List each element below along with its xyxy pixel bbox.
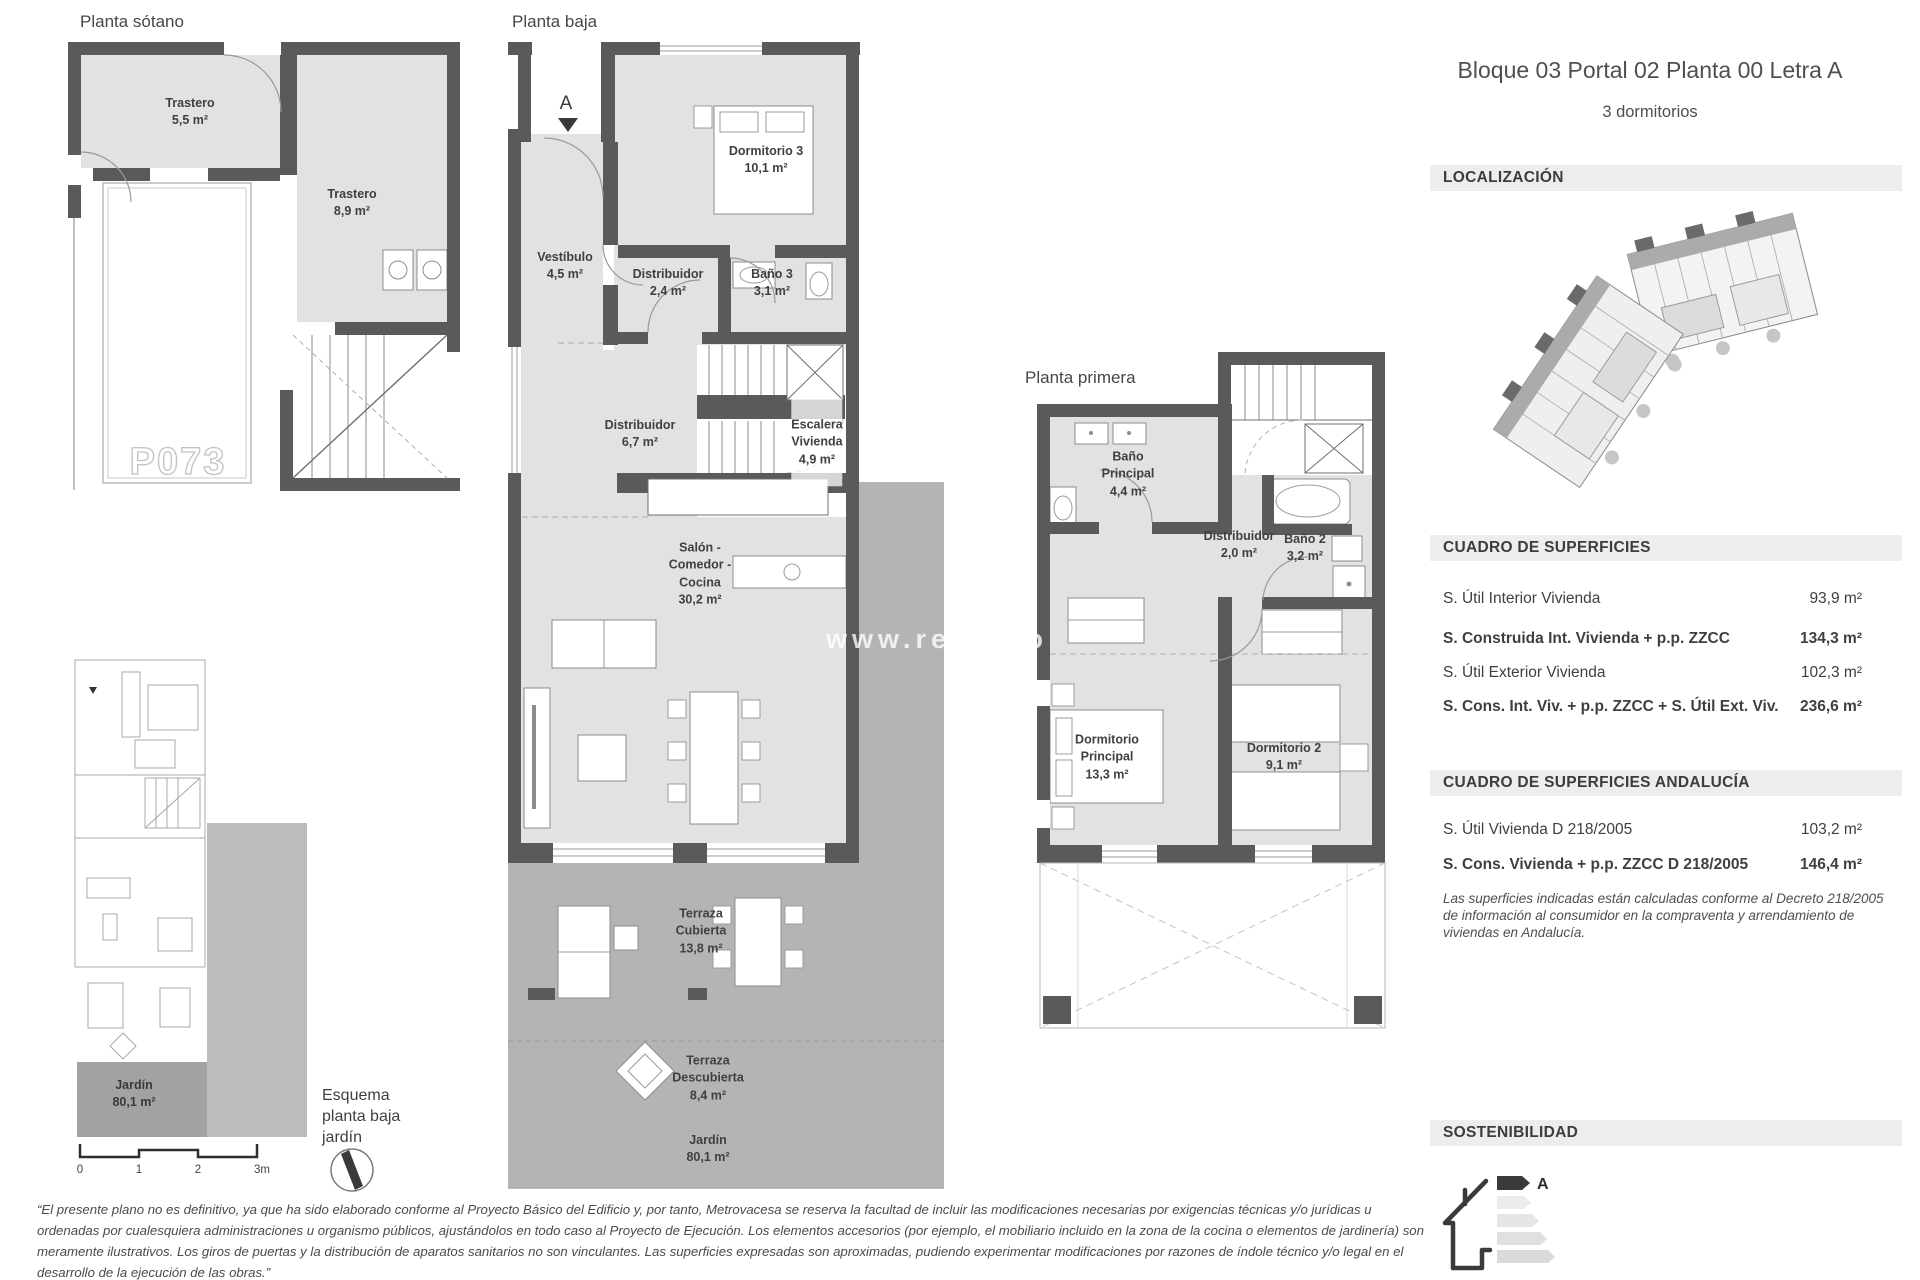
room-area: 8,9 m² xyxy=(327,203,376,221)
room-name: Escalera Vivienda xyxy=(791,417,842,449)
room-name: Distribuidor xyxy=(633,267,704,281)
room-label-dormitorio-principal: Dormitorio Principal 13,3 m² xyxy=(1075,713,1139,801)
plan-primera-floorplan xyxy=(1037,352,1385,1028)
surface-value: 102,3 m² xyxy=(1801,664,1862,682)
room-label-distribuidor-24: Distribuidor 2,4 m² xyxy=(633,248,704,318)
room-label-terraza-cubierta: Terraza Cubierta 13,8 m² xyxy=(676,887,727,975)
surface-value: 134,3 m² xyxy=(1800,630,1862,648)
kitchen-counter-icon xyxy=(733,556,846,588)
surface-row: S. Cons. Int. Viv. + p.p. ZZCC + S. Útil… xyxy=(1443,698,1862,716)
page-title: Bloque 03 Portal 02 Planta 00 Letra A xyxy=(1400,57,1900,84)
room-area: 30,2 m² xyxy=(669,592,732,610)
room-name: Baño 3 xyxy=(751,267,793,281)
room-area: 5,5 m² xyxy=(165,112,214,130)
surface-label: S. Construida Int. Vivienda + p.p. ZZCC xyxy=(1443,630,1730,648)
room-name: Terraza Descubierta xyxy=(672,1053,744,1085)
room-label-terraza-descubierta: Terraza Descubierta 8,4 m² xyxy=(672,1034,744,1122)
room-name: Dormitorio 3 xyxy=(729,144,803,158)
room-name: Trastero xyxy=(327,187,376,201)
section-header-superficies-andalucia: CUADRO DE SUPERFICIES ANDALUCÍA xyxy=(1430,770,1902,796)
surfaces-note: Las superficies indicadas están calculad… xyxy=(1443,890,1895,941)
site-plan-image xyxy=(1483,202,1821,497)
room-area: 2,4 m² xyxy=(633,283,704,301)
room-area: 3,2 m² xyxy=(1284,548,1326,566)
surface-value: 103,2 m² xyxy=(1801,821,1862,839)
surface-row-andalucia: S. Útil Vivienda D 218/2005 103,2 m² xyxy=(1443,821,1862,839)
room-area: 2,0 m² xyxy=(1204,545,1275,563)
surface-label: S. Cons. Vivienda + p.p. ZZCC D 218/2005 xyxy=(1443,856,1748,874)
room-area: 80,1 m² xyxy=(686,1149,729,1167)
room-name: Trastero xyxy=(165,96,214,110)
room-name: Jardín xyxy=(689,1133,727,1147)
room-label-dormitorio2: Dormitorio 2 9,1 m² xyxy=(1247,722,1321,792)
room-area: 4,9 m² xyxy=(791,451,842,469)
surface-row-andalucia: S. Cons. Vivienda + p.p. ZZCC D 218/2005… xyxy=(1443,856,1862,874)
room-label-distribuidor-67: Distribuidor 6,7 m² xyxy=(605,399,676,469)
scale-tick-0: 0 xyxy=(77,1164,83,1176)
pergola-area xyxy=(1040,863,1385,1028)
surface-row: S. Construida Int. Vivienda + p.p. ZZCC … xyxy=(1443,630,1862,648)
room-area: 13,8 m² xyxy=(676,940,727,958)
esquema-garden-label: Jardín 80,1 m² xyxy=(112,1059,155,1129)
surface-value: 93,9 m² xyxy=(1809,590,1862,608)
room-area: 6,7 m² xyxy=(605,434,676,452)
room-label-bano2: Baño 2 3,2 m² xyxy=(1284,513,1326,583)
room-label-salon: Salón - Comedor - Cocina 30,2 m² xyxy=(669,522,732,627)
room-name: Salón - Comedor - Cocina xyxy=(669,540,732,589)
room-name: Baño 2 xyxy=(1284,532,1326,546)
disclaimer-text: “El presente plano no es definitivo, ya … xyxy=(37,1199,1429,1280)
room-name: Distribuidor xyxy=(1204,529,1275,543)
room-name: Vestíbulo xyxy=(537,250,593,264)
scale-tick-2: 2 xyxy=(195,1164,201,1176)
room-area: 9,1 m² xyxy=(1247,757,1321,775)
room-label-vestibulo: Vestíbulo 4,5 m² xyxy=(537,231,593,301)
sotano-stairs-icon xyxy=(293,335,447,478)
energy-rating-letter: A xyxy=(1537,1176,1549,1193)
section-marker-arrow-icon xyxy=(558,118,578,132)
plan-sotano-title: Planta sótano xyxy=(80,12,184,32)
plan-primera-title: Planta primera xyxy=(1025,368,1136,388)
scale-tick-3: 3m xyxy=(254,1164,270,1176)
room-area: 80,1 m² xyxy=(112,1094,155,1112)
room-name: Jardín xyxy=(115,1078,153,1092)
page-subtitle: 3 dormitorios xyxy=(1400,103,1900,122)
surface-row: S. Útil Exterior Vivienda 102,3 m² xyxy=(1443,664,1862,682)
room-area: 4,4 m² xyxy=(1102,483,1155,501)
room-name: Dormitorio Principal xyxy=(1075,732,1139,764)
surface-label: S. Útil Exterior Vivienda xyxy=(1443,664,1606,682)
surface-label: S. Útil Vivienda D 218/2005 xyxy=(1443,821,1632,839)
plan-baja-title: Planta baja xyxy=(512,12,597,32)
room-name: Baño Principal xyxy=(1102,449,1155,481)
section-header-sostenibilidad: SOSTENIBILIDAD xyxy=(1430,1120,1902,1146)
room-label-trastero-1: Trastero 5,5 m² xyxy=(165,77,214,147)
surface-value: 146,4 m² xyxy=(1800,856,1862,874)
surface-label: S. Cons. Int. Viv. + p.p. ZZCC + S. Útil… xyxy=(1443,698,1779,716)
room-label-distribuidor-20: Distribuidor 2,0 m² xyxy=(1204,510,1275,580)
watermark: www.redpiso xyxy=(826,624,1048,655)
room-label-trastero-2: Trastero 8,9 m² xyxy=(327,168,376,238)
energy-rating-icon: A xyxy=(1445,1176,1555,1268)
scale-tick-1: 1 xyxy=(136,1164,142,1176)
section-header-localizacion: LOCALIZACIÓN xyxy=(1430,165,1902,191)
plan-sotano-floorplan: P073 xyxy=(68,42,460,491)
primera-stairs-icon xyxy=(1231,365,1372,475)
room-area: 4,5 m² xyxy=(537,266,593,284)
surface-row: S. Útil Interior Vivienda 93,9 m² xyxy=(1443,590,1862,608)
room-label-dormitorio3: Dormitorio 3 10,1 m² xyxy=(729,125,803,195)
parking-number-label: P073 xyxy=(130,441,227,483)
floorplan-sheet: P073 xyxy=(0,0,1920,1280)
surface-value: 236,6 m² xyxy=(1800,698,1862,716)
esquema-schematic xyxy=(75,660,307,1137)
room-label-escalera: Escalera Vivienda 4,9 m² xyxy=(791,398,842,486)
room-name: Distribuidor xyxy=(605,418,676,432)
surface-label: S. Útil Interior Vivienda xyxy=(1443,590,1600,608)
room-area: 10,1 m² xyxy=(729,160,803,178)
esquema-caption: Esquema planta baja jardín xyxy=(322,1086,426,1148)
room-area: 8,4 m² xyxy=(672,1087,744,1105)
room-name: Terraza Cubierta xyxy=(676,906,727,938)
scale-bar: 0 1 2 3m xyxy=(77,1144,270,1176)
section-marker-label: A xyxy=(560,93,573,115)
room-label-bano3: Baño 3 3,1 m² xyxy=(751,248,793,318)
compass-icon xyxy=(331,1149,373,1191)
section-header-superficies: CUADRO DE SUPERFICIES xyxy=(1430,535,1902,561)
room-label-jardin: Jardín 80,1 m² xyxy=(686,1114,729,1184)
room-area: 13,3 m² xyxy=(1075,766,1139,784)
room-name: Dormitorio 2 xyxy=(1247,741,1321,755)
room-label-bano-principal: Baño Principal 4,4 m² xyxy=(1102,430,1155,518)
room-area: 3,1 m² xyxy=(751,283,793,301)
dining-table-icon xyxy=(690,692,738,824)
